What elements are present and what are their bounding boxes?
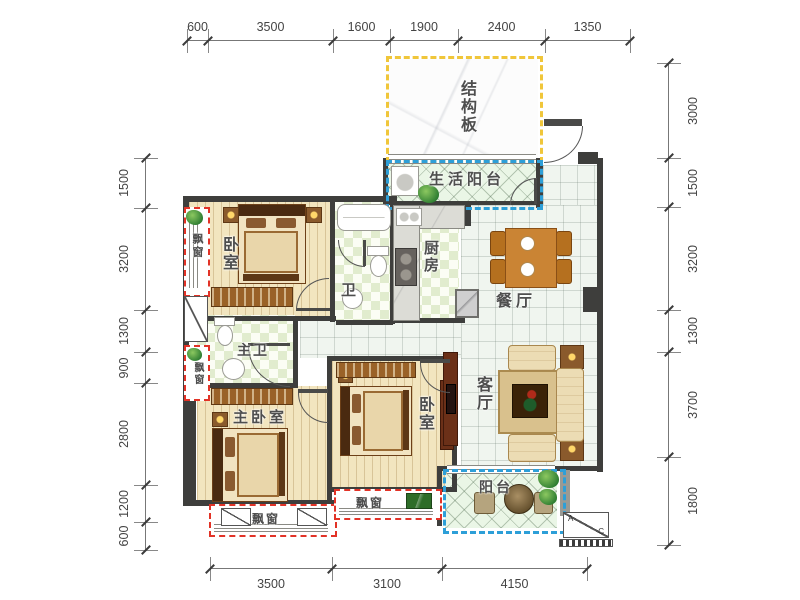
room-label-master-bedroom: 主卧室	[233, 406, 287, 427]
dining-chair	[490, 231, 506, 256]
ac-label-a: A	[568, 514, 573, 523]
room-label-bath: 卫	[341, 279, 356, 300]
dimension-label: 1900	[394, 20, 454, 34]
dining-chair	[556, 231, 572, 256]
wardrobe-master	[211, 388, 293, 405]
toilet-bowl	[217, 325, 233, 346]
wall-entry-corner	[578, 152, 598, 164]
nightstand	[306, 207, 322, 223]
dimension-chain-right: 300015003200130037001800	[668, 63, 669, 545]
ac-platform-hatch	[559, 539, 613, 547]
plant	[538, 470, 559, 488]
dimension-label: 1600	[332, 20, 392, 34]
bed-pillow	[225, 471, 235, 491]
coffee-table	[512, 384, 548, 418]
bed-master	[212, 428, 288, 502]
bay-window-bottom-mid-glass	[339, 508, 433, 515]
room-label-living: 客厅	[470, 376, 494, 412]
ac-unit-bay-left-1	[221, 508, 251, 526]
dining-chair	[556, 259, 572, 284]
plant	[187, 348, 202, 361]
bed-bedroom-mid	[340, 386, 412, 456]
plant	[539, 489, 557, 505]
dimension-label: 600	[115, 506, 133, 566]
dimension-label: 1350	[558, 20, 618, 34]
bed-blanket	[244, 231, 298, 273]
bed-blanket	[363, 391, 403, 451]
ac-platform-left	[184, 296, 208, 342]
dimension-label: 3200	[684, 229, 702, 289]
bed-pillow	[276, 218, 296, 228]
bed-headboard	[213, 429, 223, 501]
room-label-balcony: 阳台	[479, 477, 513, 497]
wall-bed1-bath	[330, 202, 335, 322]
wall-master-bath-right	[293, 318, 298, 388]
ac-unit-bay-left-2	[297, 508, 327, 526]
wardrobe-bedroom-top	[211, 287, 293, 307]
room-label-bay-bottom-left: 飘窗	[252, 510, 280, 527]
dimension-label: 1300	[684, 301, 702, 361]
wall-shaft-left	[183, 386, 196, 506]
bed-pillow	[352, 394, 361, 413]
dimension-label: 900	[115, 338, 133, 398]
bed-pillow	[225, 437, 235, 457]
room-label-bay-bottom-mid: 飘窗	[356, 494, 384, 511]
entry-floor	[543, 165, 597, 209]
bed-bedroom-top	[238, 204, 306, 284]
hall-cabinet	[455, 289, 479, 318]
room-label-bay-left-top: 飘窗	[189, 233, 205, 259]
room-label-bedroom-top: 卧室	[216, 236, 240, 272]
side-table-lamp	[560, 345, 584, 369]
dimension-label: 1500	[684, 153, 702, 213]
bed-footboard	[243, 274, 299, 281]
hallway-floor	[300, 320, 461, 358]
dimension-label: 3100	[357, 577, 417, 591]
sofa-main	[556, 368, 584, 442]
entry-door-leaf	[544, 119, 582, 126]
kitchen-stove	[395, 248, 417, 286]
dimension-label: 2800	[115, 404, 133, 464]
dining-plate	[520, 262, 535, 277]
dimension-label: 1800	[684, 471, 702, 531]
bed-pillow	[352, 426, 361, 445]
column-right-wall	[583, 287, 598, 312]
dimension-label: 3500	[241, 20, 301, 34]
washing-machine	[391, 166, 419, 196]
wall-bed1-bottom	[189, 316, 336, 321]
dimension-label: 1500	[115, 153, 133, 213]
nightstand	[212, 412, 228, 427]
bed-pillow	[246, 218, 266, 228]
dimension-chain-left: 15003200130090028001200600	[145, 158, 146, 550]
room-label-master-bath: 主卫	[237, 340, 269, 360]
sofa-top	[508, 345, 556, 371]
sofa-bottom	[508, 434, 556, 462]
wall-master-bed2-divider	[327, 356, 332, 506]
room-label-dining: 餐厅	[496, 287, 536, 311]
bathtub	[337, 204, 391, 231]
dimension-label: 3000	[684, 81, 702, 141]
nightstand	[223, 207, 239, 223]
dimension-chain-top: 60035001600190024001350	[187, 40, 630, 41]
room-label-kitchen: 厨房	[420, 240, 441, 274]
dimension-label: 3200	[115, 229, 133, 289]
dining-chair	[490, 259, 506, 284]
room-label-structural-slab: 结构板	[454, 80, 478, 134]
kitchen-sink	[396, 208, 422, 226]
master-bath-sink	[222, 358, 245, 380]
planter-box	[406, 493, 432, 509]
wardrobe-bedroom-mid	[336, 362, 416, 378]
bed-footboard	[279, 432, 285, 496]
dimension-label: 600	[168, 20, 228, 34]
dimension-label: 4150	[485, 577, 545, 591]
dimension-label: 2400	[472, 20, 532, 34]
wall-right	[597, 158, 603, 472]
bed-footboard	[403, 390, 409, 450]
floor-plan-canvas: 60035001600190024001350 350031004150 150…	[0, 0, 800, 600]
toilet-bowl	[370, 255, 387, 277]
room-label-bedroom-mid: 卧室	[412, 396, 436, 432]
bed-headboard	[239, 205, 305, 216]
dimension-label: 3500	[241, 577, 301, 591]
room-label-bay-left-mid: 飘窗	[190, 362, 205, 386]
dining-plate	[520, 236, 535, 251]
bed-headboard	[341, 387, 350, 455]
dimension-chain-bottom: 350031004150	[210, 568, 587, 569]
bed-blanket	[237, 433, 279, 497]
ac-platform-bottom-right: A C	[563, 512, 609, 538]
wall-top	[183, 196, 397, 202]
room-label-service-balcony: 生活阳台	[429, 168, 505, 189]
plant	[186, 210, 203, 225]
wall-bath-bottom	[336, 320, 393, 325]
dimension-label: 3700	[684, 375, 702, 435]
ac-label-c: C	[598, 527, 604, 536]
